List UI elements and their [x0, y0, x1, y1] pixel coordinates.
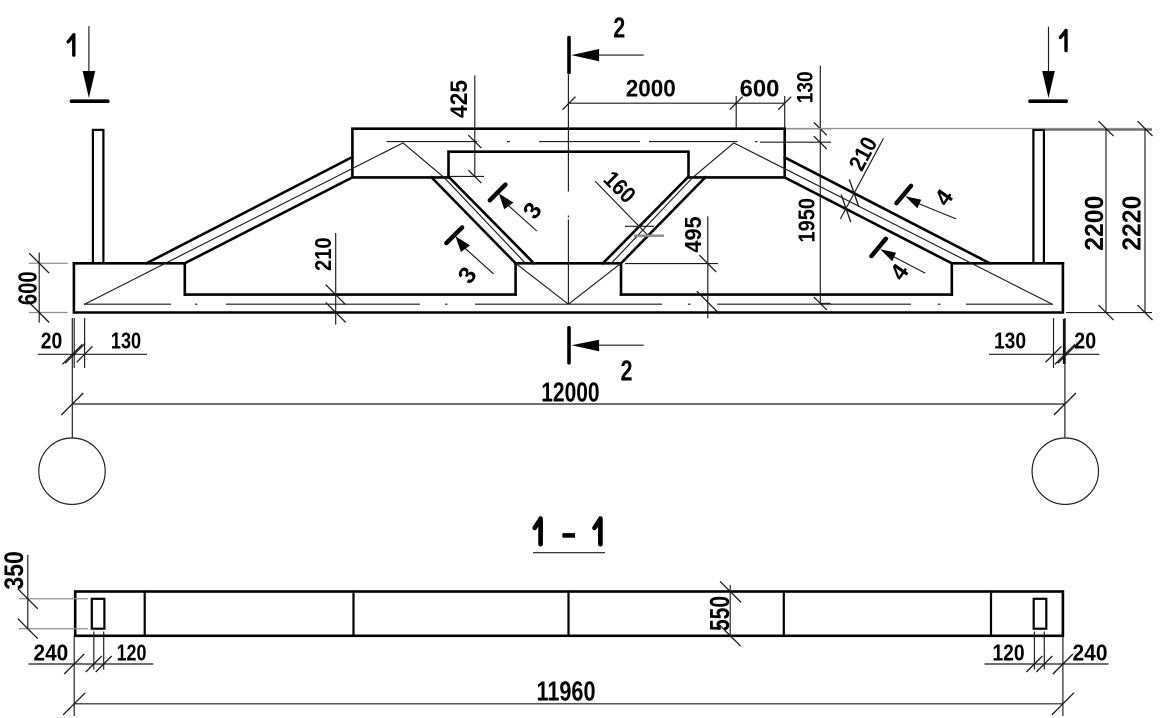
- svg-text:120: 120: [117, 639, 147, 665]
- svg-text:2220: 2220: [1116, 196, 1146, 251]
- svg-text:550: 550: [704, 596, 735, 631]
- svg-text:120: 120: [992, 639, 1024, 665]
- svg-text:600: 600: [740, 76, 780, 103]
- svg-text:350: 350: [0, 551, 29, 589]
- svg-text:2: 2: [613, 13, 625, 45]
- svg-text:240: 240: [1073, 639, 1108, 665]
- svg-text:240: 240: [34, 639, 69, 665]
- svg-text:210: 210: [310, 237, 336, 271]
- svg-text:1950: 1950: [794, 198, 820, 243]
- svg-text:2200: 2200: [1079, 196, 1109, 251]
- svg-text:425: 425: [446, 80, 473, 118]
- svg-text:130: 130: [994, 328, 1026, 354]
- svg-text:20: 20: [41, 328, 63, 354]
- svg-text:2000: 2000: [626, 76, 676, 103]
- svg-text:11960: 11960: [537, 676, 596, 707]
- svg-text:20: 20: [1074, 328, 1096, 354]
- svg-text:600: 600: [12, 271, 42, 305]
- svg-text:130: 130: [793, 71, 818, 103]
- svg-text:130: 130: [111, 328, 141, 354]
- svg-text:495: 495: [680, 216, 706, 252]
- svg-text:2: 2: [621, 356, 633, 388]
- svg-text:12000: 12000: [541, 376, 599, 407]
